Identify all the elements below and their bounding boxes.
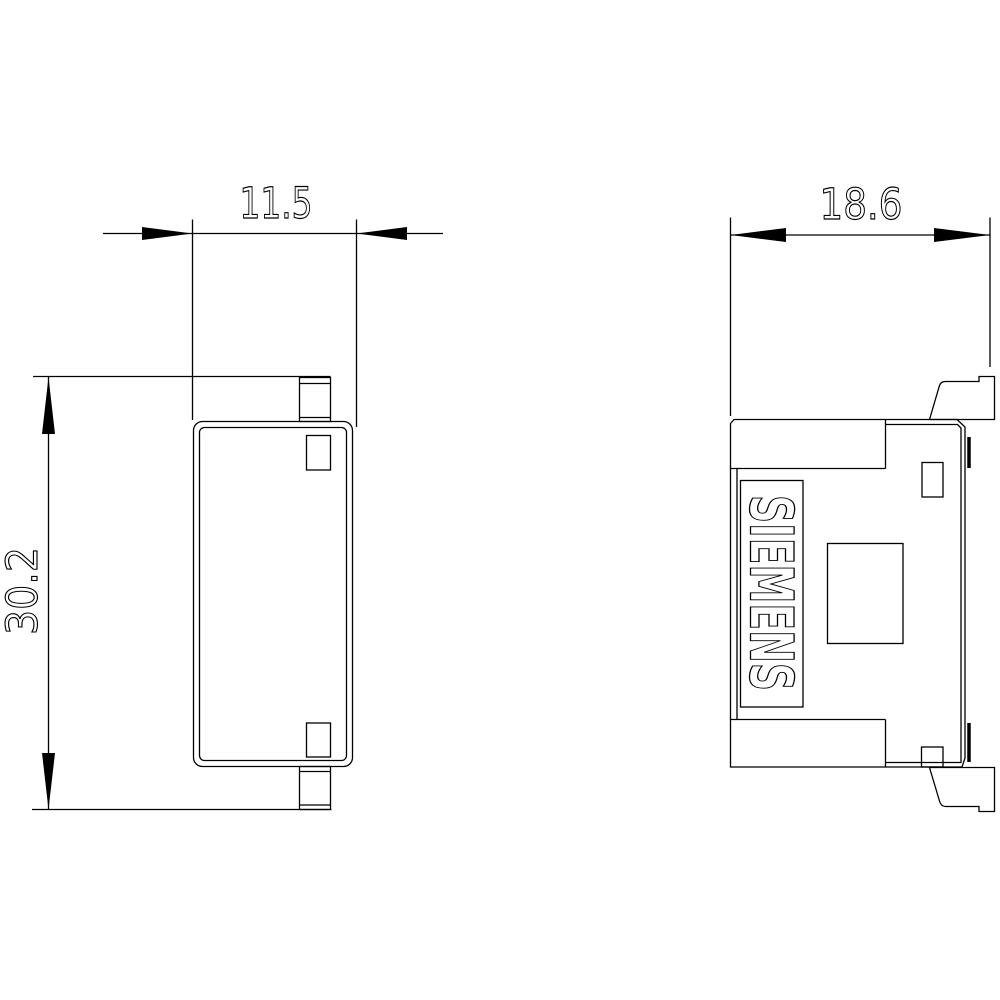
front-height-dimension: 30.2 [0,377,332,810]
dimension-arrow-right-pointing [934,228,990,242]
side-width-dimension-lines [731,218,991,417]
side-center-window [828,544,904,644]
front-view [194,378,353,810]
dimension-arrow-left-pointing [731,228,787,242]
front-width-dimension-lines [103,220,443,428]
front-detail-window-bottom [307,723,331,757]
front-detail-window-top [307,436,331,471]
front-width-dimension: 11.5 [103,179,443,427]
front-body-outer-contour [194,422,353,767]
side-view: SIEMENS [731,377,995,812]
dimensional-drawing: 11.5 30.2 [0,0,1000,1000]
front-bottom-tab [300,767,331,810]
brand-label-text: SIEMENS [736,495,806,691]
din-rail-clip-bottom [930,768,995,812]
side-detail-window-bottom [922,747,944,767]
side-width-value: 18.6 [820,180,903,230]
side-width-dimension: 18.6 [731,180,991,416]
dimension-arrow-right-pointing [142,227,193,240]
din-rail-clip-top [930,377,995,420]
front-body-inner-contour [200,428,347,761]
dimension-arrow-left-pointing [357,227,408,240]
front-height-value: 30.2 [0,547,48,635]
side-body-inner-contour [886,425,962,763]
technical-drawing-canvas: 11.5 30.2 [0,0,1000,1000]
front-height-dimension-lines [32,377,332,810]
dimension-arrow-down-pointing [42,753,55,810]
front-width-value: 11.5 [240,179,313,229]
dimension-arrow-up-pointing [42,377,55,434]
side-detail-window-top [922,463,943,498]
